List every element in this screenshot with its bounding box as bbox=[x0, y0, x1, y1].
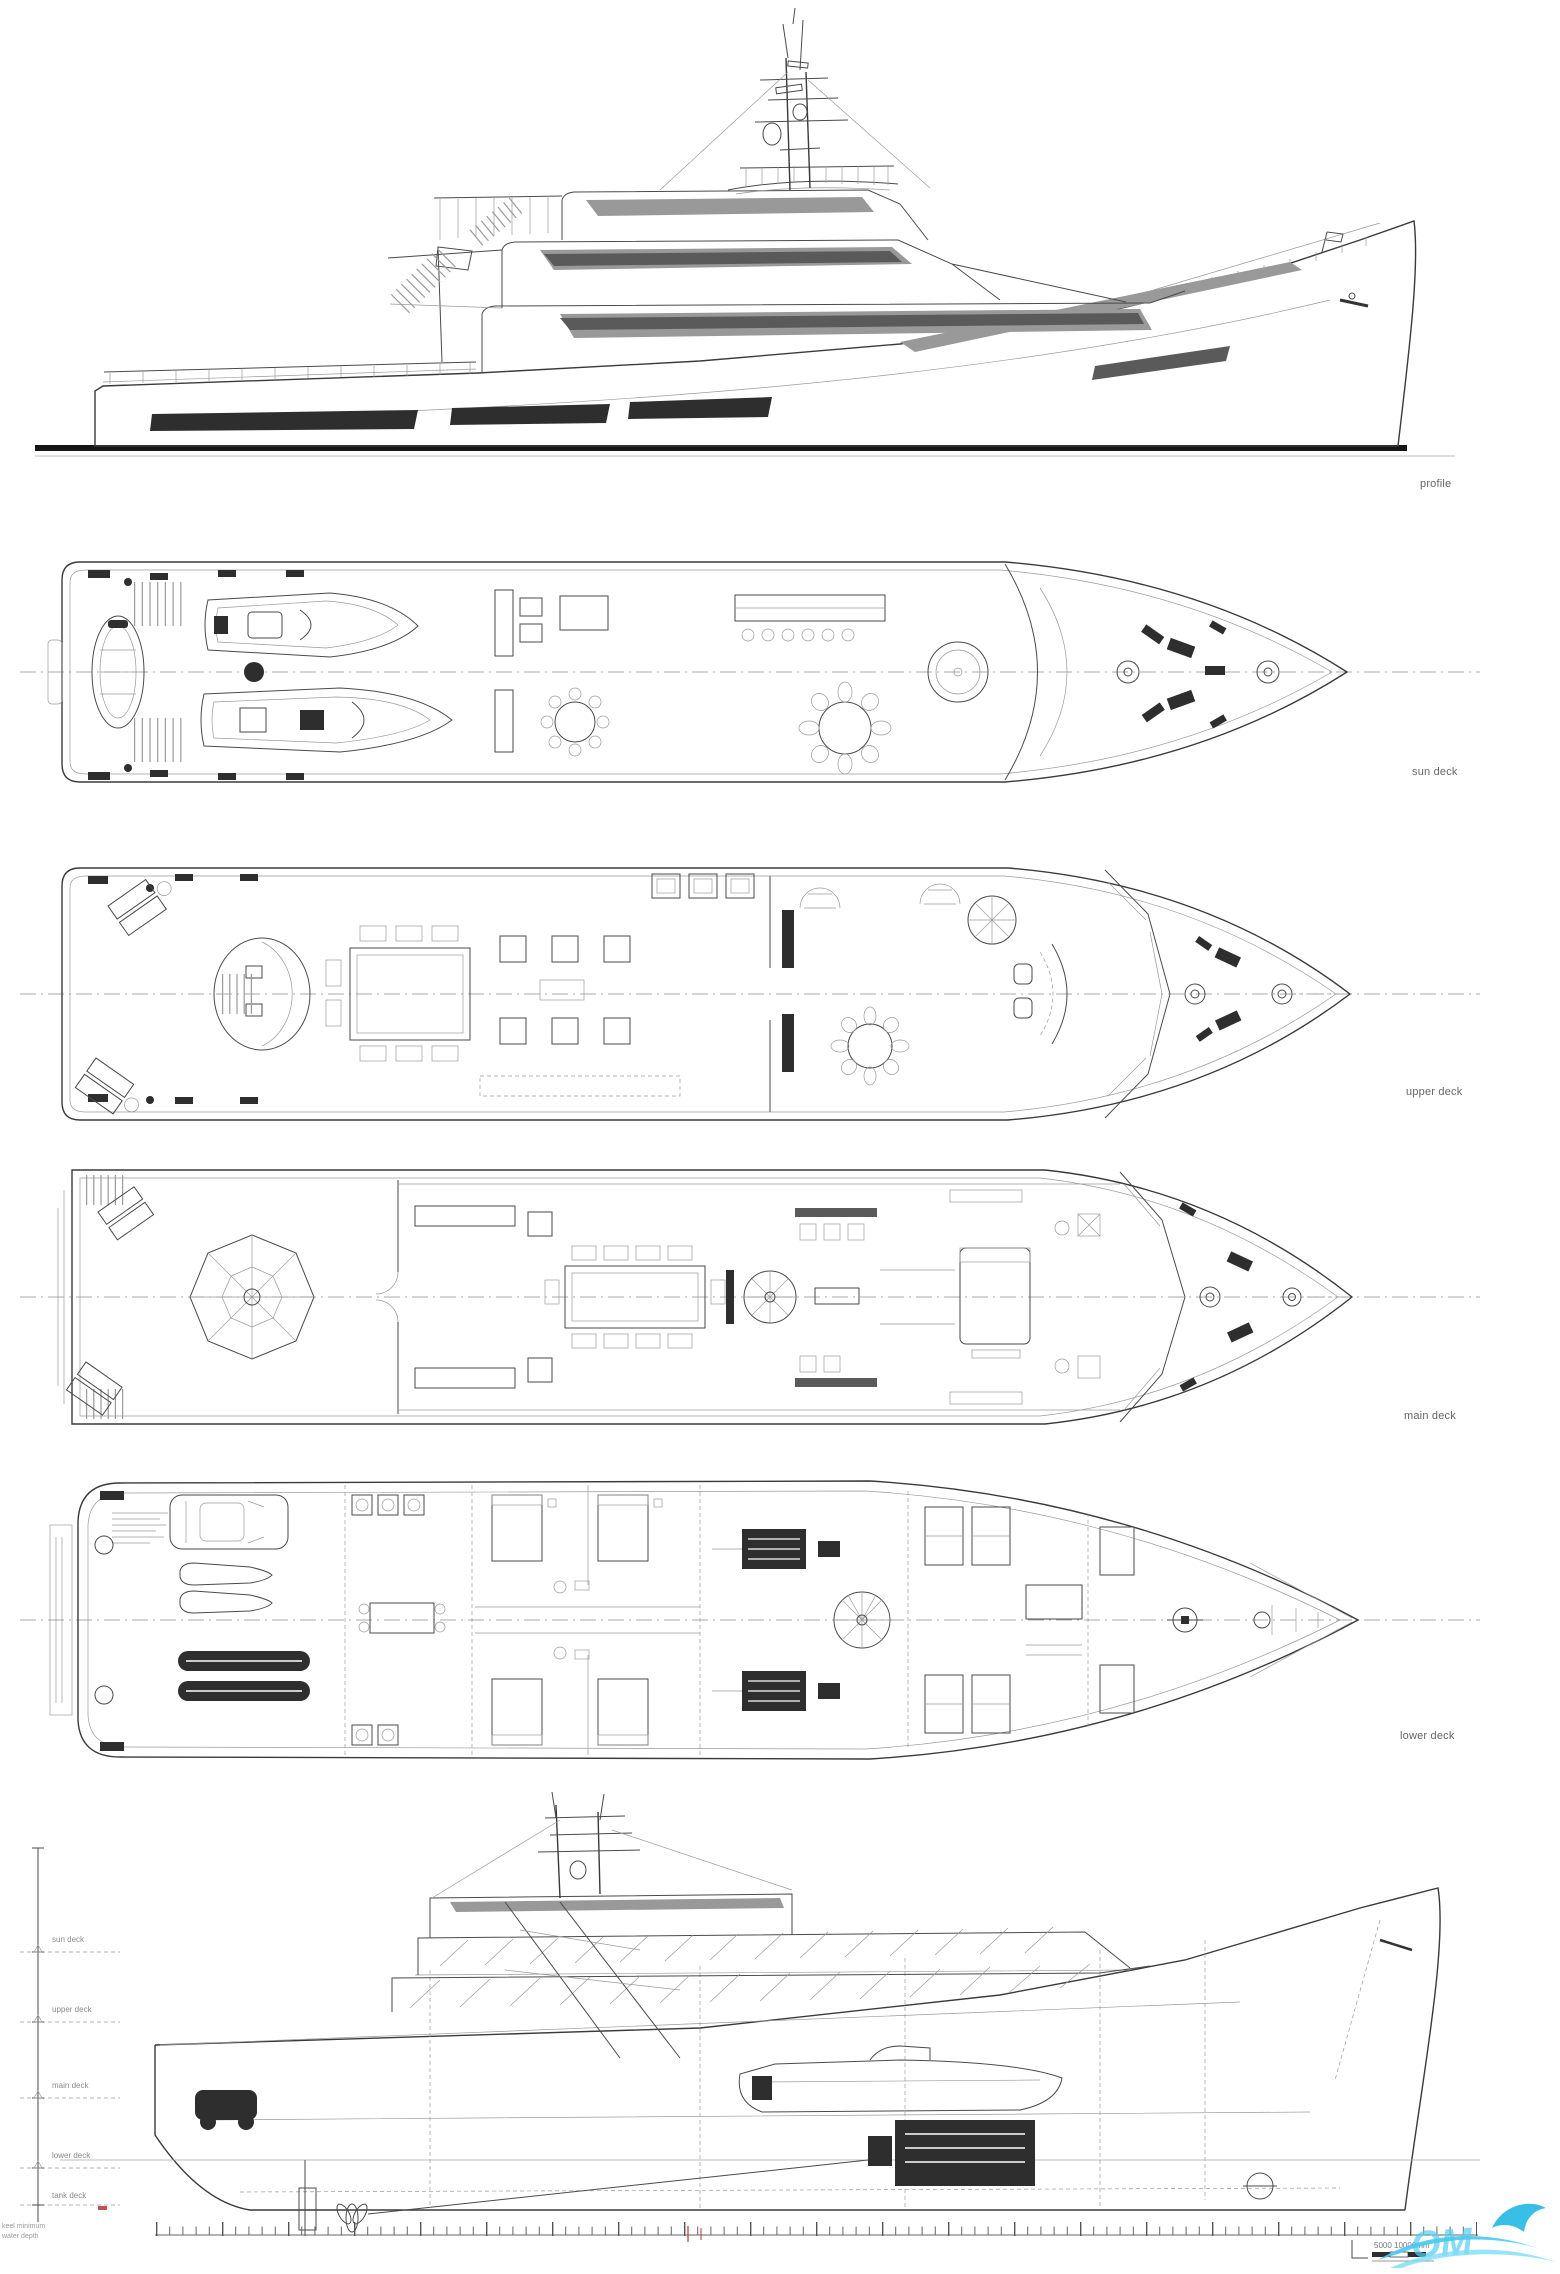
ga-drawing-sheet: profile bbox=[0, 0, 1560, 2274]
lounge-armchairs bbox=[480, 936, 680, 1096]
rudder bbox=[299, 2160, 316, 2236]
ladder-label-tank-deck: tank deck bbox=[52, 2191, 87, 2200]
main-deckhouse bbox=[482, 291, 1185, 372]
bar-counter bbox=[735, 595, 885, 641]
round-dining-table bbox=[799, 682, 891, 774]
radar-platform bbox=[728, 166, 898, 194]
sun-loungers-aft bbox=[66, 1187, 153, 1415]
mast-inboard bbox=[432, 1792, 792, 1898]
chase-tender-2 bbox=[201, 688, 452, 752]
deck-hatches bbox=[88, 874, 258, 1104]
watermark-logo: OM bbox=[1378, 2204, 1556, 2268]
mast bbox=[660, 8, 930, 190]
skylights bbox=[652, 874, 754, 898]
galley bbox=[795, 1208, 955, 1387]
anchor bbox=[1340, 293, 1368, 306]
spiral-stair bbox=[968, 896, 1016, 944]
frame-ruler bbox=[155, 2226, 1478, 2242]
tender-garage-car bbox=[195, 2090, 257, 2130]
red-dimension-mark bbox=[98, 2206, 107, 2210]
ladder-label-main-deck: main deck bbox=[52, 2081, 89, 2090]
watermark-fin bbox=[1492, 2204, 1546, 2232]
garage-car bbox=[170, 1495, 288, 1549]
hull-inboard bbox=[60, 1888, 1480, 2210]
garage bbox=[95, 1491, 310, 1751]
inboard-profile-drawing: sun deck upper deck main deck lower deck… bbox=[0, 1790, 1560, 2274]
rescue-tender bbox=[92, 616, 144, 728]
kayaks bbox=[178, 1651, 310, 1701]
garage-tender-inboard bbox=[739, 2046, 1062, 2112]
deck-winch bbox=[244, 662, 264, 682]
view-label-main-deck: main deck bbox=[1404, 1410, 1456, 1422]
jet-skis bbox=[180, 1563, 272, 1613]
view-label-upper-deck: upper deck bbox=[1406, 1086, 1462, 1098]
circular-stair bbox=[744, 1271, 796, 1323]
ladder-footnote-2: water depth bbox=[1, 2233, 39, 2240]
lower-deck-plan-drawing bbox=[0, 1455, 1560, 1785]
upper-deckhouse bbox=[388, 240, 1126, 308]
ladder-label-sun-deck: sun deck bbox=[52, 1935, 85, 1944]
aft-deck-railing bbox=[104, 247, 476, 384]
davit-crane bbox=[505, 1902, 680, 2058]
view-label-sun-deck: sun deck bbox=[1412, 766, 1458, 778]
view-label-profile: profile bbox=[1420, 478, 1451, 490]
ladder-label-upper-deck: upper deck bbox=[52, 2005, 93, 2014]
dimension-ladder: sun deck upper deck main deck lower deck… bbox=[1, 1848, 120, 2240]
main-deck-plan-drawing bbox=[0, 1150, 1560, 1450]
alfresco-dining bbox=[326, 926, 470, 1061]
anchor-chain bbox=[1335, 1920, 1380, 2080]
sun-loungers-aft bbox=[75, 870, 180, 1124]
superstructure-inboard bbox=[392, 1894, 1150, 2012]
chase-tender-1 bbox=[205, 593, 418, 657]
ladder-label-lower-deck: lower deck bbox=[52, 2151, 91, 2160]
sun-deck-hardtop bbox=[434, 190, 928, 240]
bow-mooring-gear bbox=[1117, 620, 1279, 728]
ladder-footnote-1: keel minimum bbox=[2, 2223, 45, 2230]
view-label-lower-deck: lower deck bbox=[1400, 1730, 1455, 1742]
spiral-stair bbox=[834, 1592, 890, 1648]
aft-lounge bbox=[495, 590, 609, 756]
upper-deck-plan-drawing bbox=[0, 848, 1560, 1130]
sun-deck-plan-drawing bbox=[0, 540, 1560, 810]
profile-view-drawing bbox=[0, 0, 1560, 500]
octagon-pavilion bbox=[190, 1235, 314, 1359]
propeller bbox=[334, 2202, 370, 2232]
